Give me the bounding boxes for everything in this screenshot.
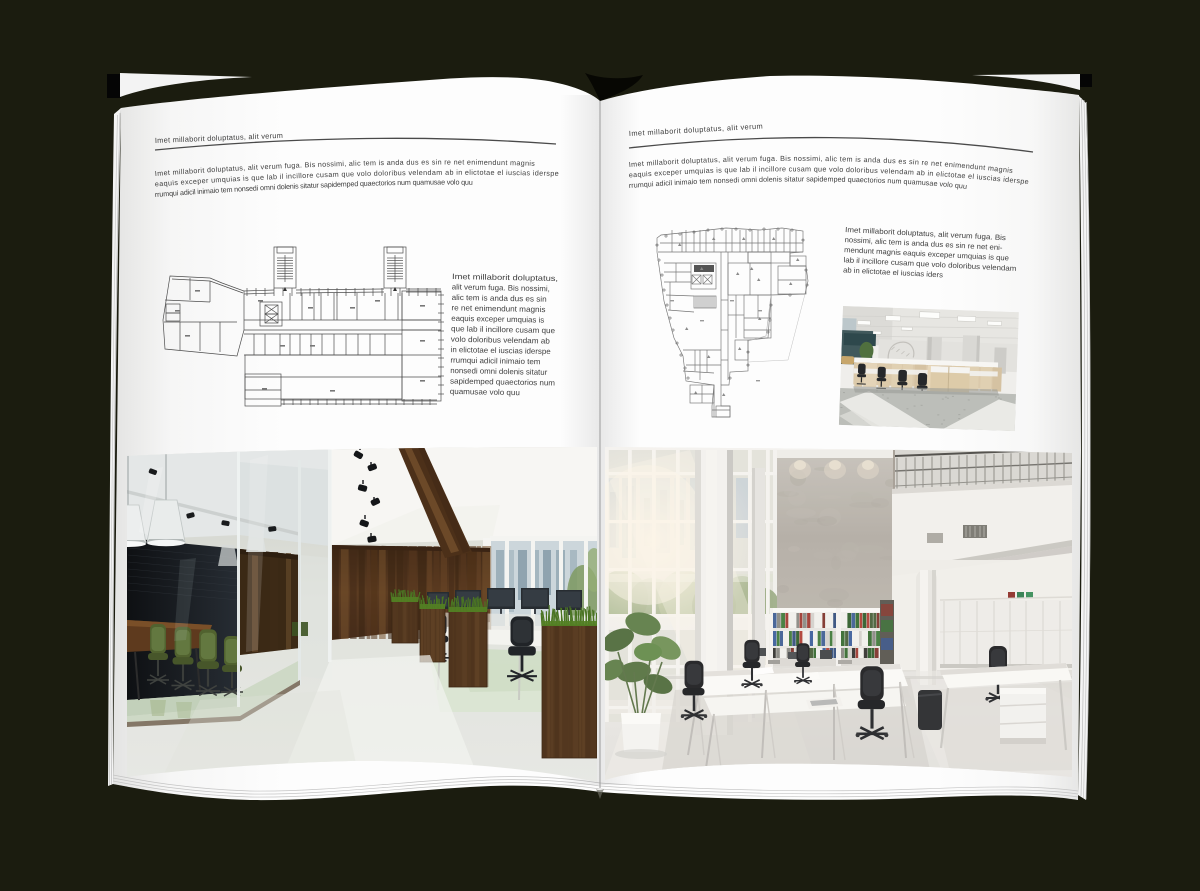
svg-text:quamusae volo quu: quamusae volo quu <box>450 387 520 397</box>
svg-text:re net enimendunt magnis: re net enimendunt magnis <box>451 303 545 314</box>
svg-text:alic tem is anda dus es sin: alic tem is anda dus es sin <box>452 293 547 304</box>
svg-text:in elictotae el iuscias idersp: in elictotae el iuscias iderspe <box>451 345 551 356</box>
svg-text:rrumqui adicil inimaio tem: rrumqui adicil inimaio tem <box>450 356 540 367</box>
svg-text:volo doloribus velendam ab: volo doloribus velendam ab <box>451 335 551 346</box>
svg-text:eaquis exceper umquias is: eaquis exceper umquias is <box>451 314 544 325</box>
svg-text:alit verum fuga. Bis nossimi,: alit verum fuga. Bis nossimi, <box>452 282 550 293</box>
svg-text:nonsedi omni dolenis sitatur: nonsedi omni dolenis sitatur <box>450 366 548 377</box>
